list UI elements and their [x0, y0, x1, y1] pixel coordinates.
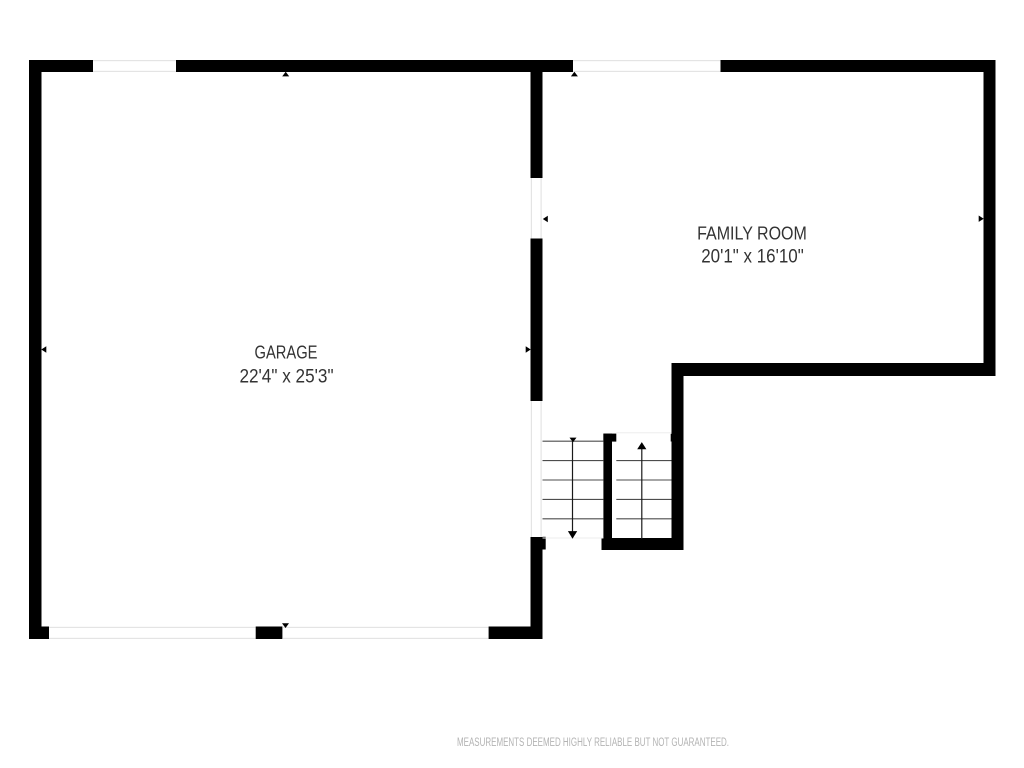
svg-text:22'4" x 25'3": 22'4" x 25'3": [239, 365, 333, 387]
svg-text:GARAGE: GARAGE: [255, 342, 318, 363]
svg-text:20'1" x 16'10": 20'1" x 16'10": [701, 245, 804, 267]
svg-text:MEASUREMENTS DEEMED HIGHLY REL: MEASUREMENTS DEEMED HIGHLY RELIABLE BUT …: [457, 737, 729, 749]
svg-text:FAMILY ROOM: FAMILY ROOM: [697, 223, 807, 244]
